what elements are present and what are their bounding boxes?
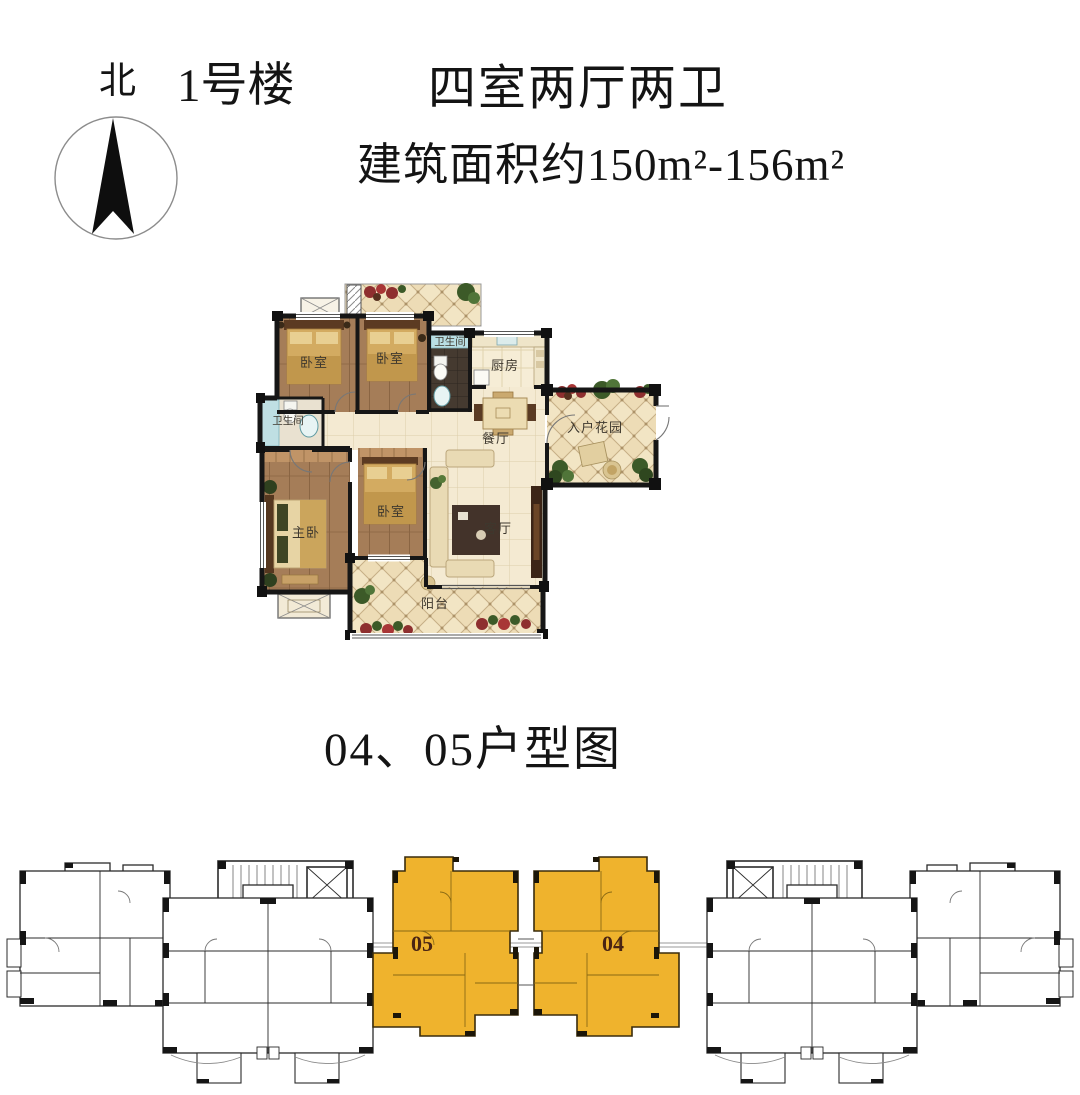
- north-label: 北: [99, 50, 137, 104]
- floorplan: 卧室 卧室 卫生间 厨房 餐厅 入户花园 卫生间 主卧 卧室 客厅 阳台: [250, 280, 670, 652]
- room-label-bedroom-c: 卧室: [377, 504, 405, 519]
- page: 北 1号楼 四室两厅两卫 建筑面积约150m²-156m²: [0, 0, 1080, 1095]
- room-label-balcony: 阳台: [421, 596, 449, 611]
- room-label-bedroom-b: 卧室: [376, 351, 404, 366]
- room-label-master: 主卧: [292, 525, 320, 540]
- room-label-bathroom-left: 卫生间: [272, 414, 304, 427]
- unit-04-label: 04: [602, 931, 624, 956]
- compass-north-icon: [50, 112, 182, 244]
- bedroom-a-bed: [278, 320, 351, 384]
- layout-title: 四室两厅两卫: [428, 48, 728, 118]
- room-label-kitchen: 厨房: [491, 358, 519, 373]
- dining-table: [474, 392, 536, 435]
- keyplan-center-joint: [518, 939, 534, 985]
- building-number: 1号楼: [177, 46, 295, 115]
- keyplan: 05 04: [5, 843, 1075, 1093]
- section-title: 04、05户型图: [324, 710, 622, 779]
- room-label-entry-garden: 入户花园: [567, 420, 623, 435]
- area-text: 建筑面积约150m²-156m²: [357, 128, 845, 193]
- room-label-living: 客厅: [484, 521, 512, 536]
- unit-05-label: 05: [411, 931, 433, 956]
- ac-platform-bottom: [278, 594, 330, 618]
- room-label-bathroom-top: 卫生间: [434, 335, 466, 348]
- keyplan-unit-05: [373, 857, 518, 1036]
- room-label-dining: 餐厅: [482, 431, 510, 446]
- room-label-bedroom-a: 卧室: [300, 355, 328, 370]
- keyplan-right-half: [707, 861, 1073, 1083]
- keyplan-left-half: [7, 861, 373, 1083]
